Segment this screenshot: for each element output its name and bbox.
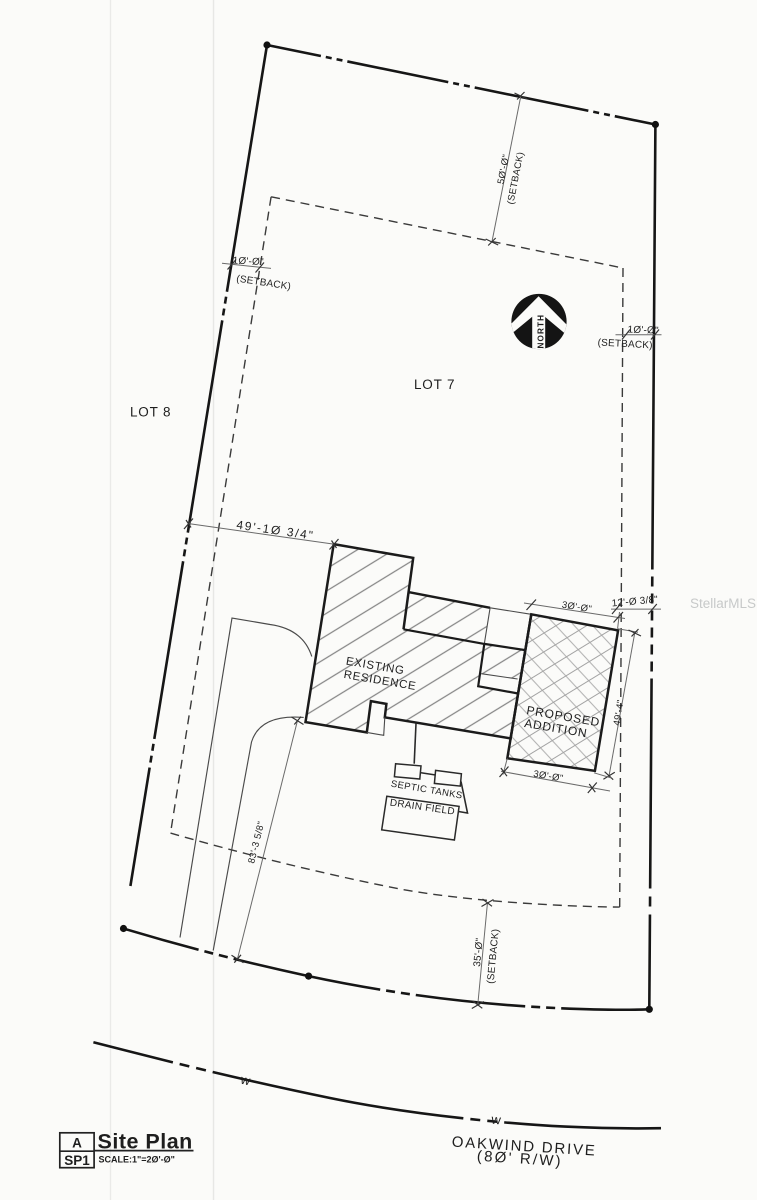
svg-text:1Ø'-Ø": 1Ø'-Ø": [232, 256, 264, 269]
svg-text:SCALE:1"=2Ø'-Ø": SCALE:1"=2Ø'-Ø": [99, 1155, 175, 1165]
svg-text:LOT 8: LOT 8: [130, 405, 171, 420]
svg-text:1Ø'-Ø": 1Ø'-Ø": [627, 325, 659, 337]
svg-text:NORTH: NORTH: [536, 314, 545, 349]
svg-text:SP1: SP1: [64, 1153, 90, 1168]
svg-text:A: A: [72, 1136, 82, 1151]
svg-text:LOT 7: LOT 7: [414, 377, 455, 392]
svg-text:StellarMLS: StellarMLS: [690, 596, 756, 611]
